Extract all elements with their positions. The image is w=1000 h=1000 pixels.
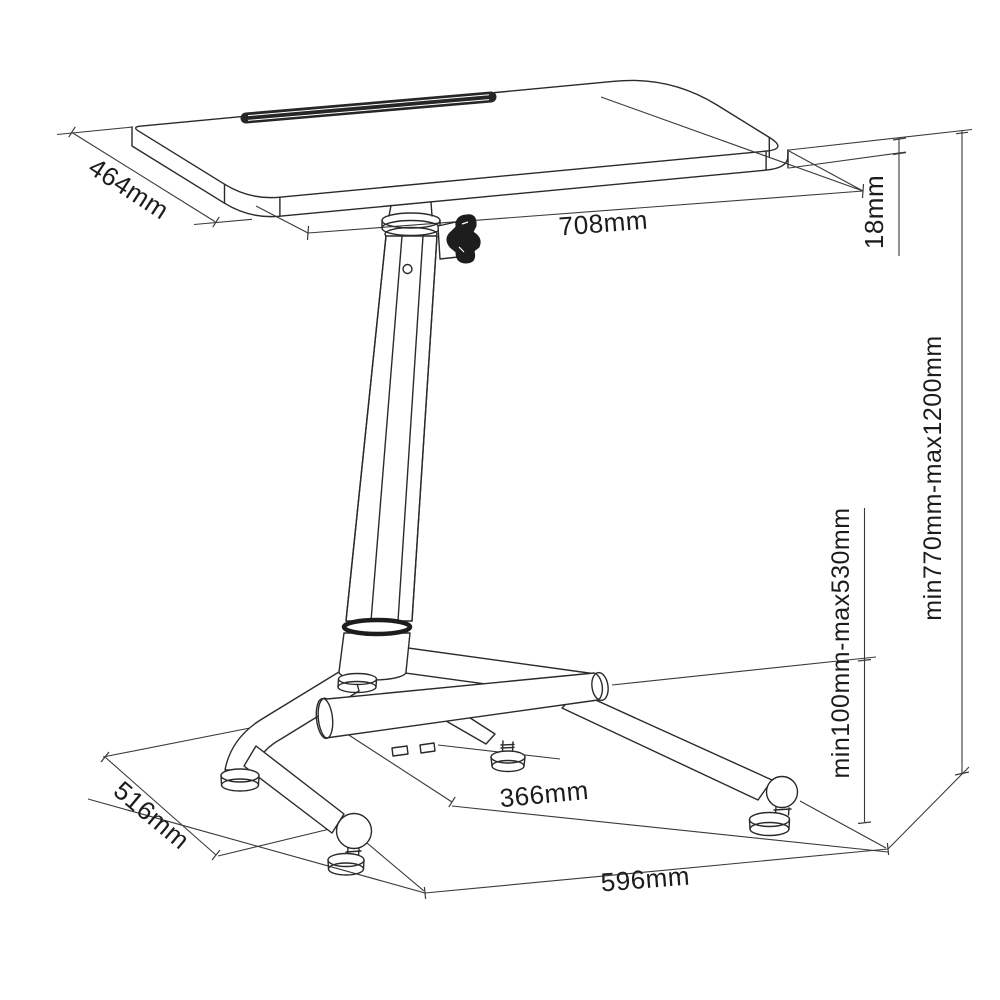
base-sleeve xyxy=(339,633,410,680)
telescoping-pole xyxy=(346,236,437,621)
label-base-inner-depth: 366mm xyxy=(498,775,590,813)
foot-back-left xyxy=(221,769,259,791)
tabletop xyxy=(132,80,788,216)
dimension-labels: 464mm 708mm 18mm min770mm-max1200mm min1… xyxy=(83,152,947,898)
label-desk-height-range: min770mm-max1200mm xyxy=(919,335,947,620)
label-base-depth: 516mm xyxy=(108,775,196,855)
label-footrest-height-range: min100mm-max530mm xyxy=(827,507,855,778)
label-tabletop-thickness: 18mm xyxy=(859,175,889,249)
dimension-diagram: 464mm 708mm 18mm min770mm-max1200mm min1… xyxy=(0,0,1000,1000)
pole-clamp-ring xyxy=(344,620,410,634)
base xyxy=(225,236,772,833)
desk-line-drawing: 464mm 708mm 18mm min770mm-max1200mm min1… xyxy=(0,0,1000,1000)
foot-middle xyxy=(491,741,525,772)
label-base-width: 596mm xyxy=(600,861,691,898)
label-tabletop-width: 708mm xyxy=(558,205,649,242)
